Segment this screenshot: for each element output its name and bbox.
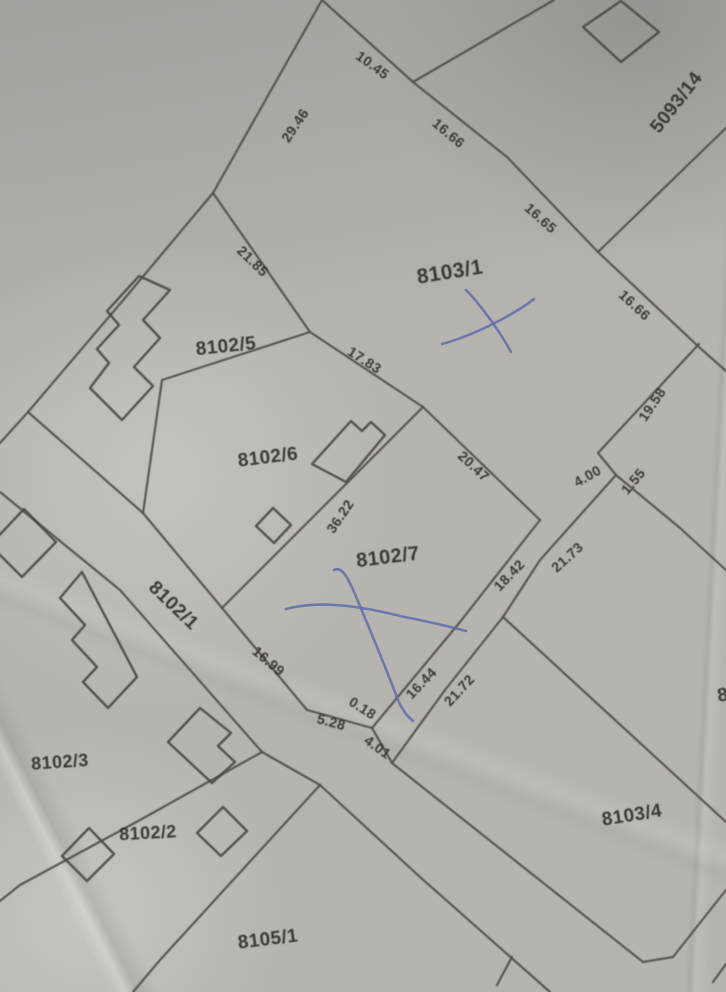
building-outlines (0, 1, 659, 881)
measurement-label-16-99: 16.99 (250, 643, 289, 679)
parcel-label-8102-2: 8102/2 (119, 821, 177, 844)
measurement-label-0-18: 0.18 (346, 693, 379, 722)
boundary-edge-8105-1-west (133, 785, 320, 992)
boundary-lines (0, 0, 726, 992)
pen-x-8102-7-stroke-a (334, 569, 413, 721)
parcel-label-8102-1: 8102/1 (144, 577, 202, 634)
boundary-edge-8105-1-east (320, 785, 550, 992)
pen-x-8103-1-stroke-b (442, 299, 534, 344)
parcel-label-8103-1: 8103/1 (415, 255, 484, 288)
parcel-label-8102-5: 8102/5 (195, 333, 257, 360)
cadastral-map-photo: 5093/148103/18102/58102/68102/78102/1810… (0, 0, 726, 992)
parcel-label-8105-1: 8105/1 (237, 925, 300, 953)
parcel-label-8: 8 (716, 684, 726, 706)
parcel-label-8102-7: 8102/7 (355, 542, 421, 572)
building-strip-stepped (60, 572, 137, 708)
building-5093-14 (583, 1, 659, 62)
building-8102-6-main (312, 421, 385, 482)
map-labels: 5093/148103/18102/58102/68102/78102/1810… (31, 48, 726, 954)
parcel-label-8102-3: 8102/3 (31, 750, 90, 774)
measurement-label-20-47: 20.47 (455, 448, 493, 485)
measurement-label-4-00: 4.00 (571, 462, 604, 490)
building-8102-3-notched (168, 708, 235, 783)
parcel-label-8103-4: 8103/4 (600, 800, 663, 830)
boundary-5093-14-south-edge (598, 128, 726, 252)
boundary-strip-sw-edge (0, 492, 320, 785)
parcel-label-5093-14: 5093/14 (646, 68, 707, 137)
boundary-corner-bottom-right (713, 964, 726, 982)
boundary-5093-14-west-edge (413, 0, 554, 82)
boundary-nw-block-edge (0, 0, 322, 443)
measurement-label-29-46: 29.46 (278, 105, 312, 145)
pen-x-8103-1-stroke-a (466, 290, 511, 352)
measurement-label-17-83: 17.83 (345, 343, 385, 377)
building-left-edge (0, 509, 56, 577)
boundary-tick-bottom (497, 957, 512, 985)
pen-x-8102-7-stroke-b (286, 605, 466, 631)
measurement-label-10-45: 10.45 (353, 48, 392, 83)
building-8102-6-shed (256, 508, 291, 543)
measurement-label-5-28: 5.28 (315, 710, 347, 733)
building-8102-3-square (62, 828, 114, 881)
boundary-edge-36-22 (222, 407, 423, 608)
building-8102-5-stepped (90, 276, 170, 420)
boundary-edge-8103-4-nw (503, 617, 726, 822)
boundary-edge-8103-4-south (392, 763, 726, 962)
measurement-label-1-55: 1.55 (618, 465, 649, 497)
measurement-label-19-58: 19.58 (635, 384, 669, 424)
cadastral-plan-drawing: 5093/148103/18102/58102/68102/78102/1810… (0, 0, 726, 992)
measurement-label-16-66: 16.66 (616, 287, 654, 324)
boundary-edge-8102-5-6 (143, 332, 310, 513)
building-8102-2-square (197, 807, 247, 856)
parcel-label-8102-6: 8102/6 (237, 443, 300, 471)
measurement-label-21-85: 21.85 (234, 242, 272, 279)
